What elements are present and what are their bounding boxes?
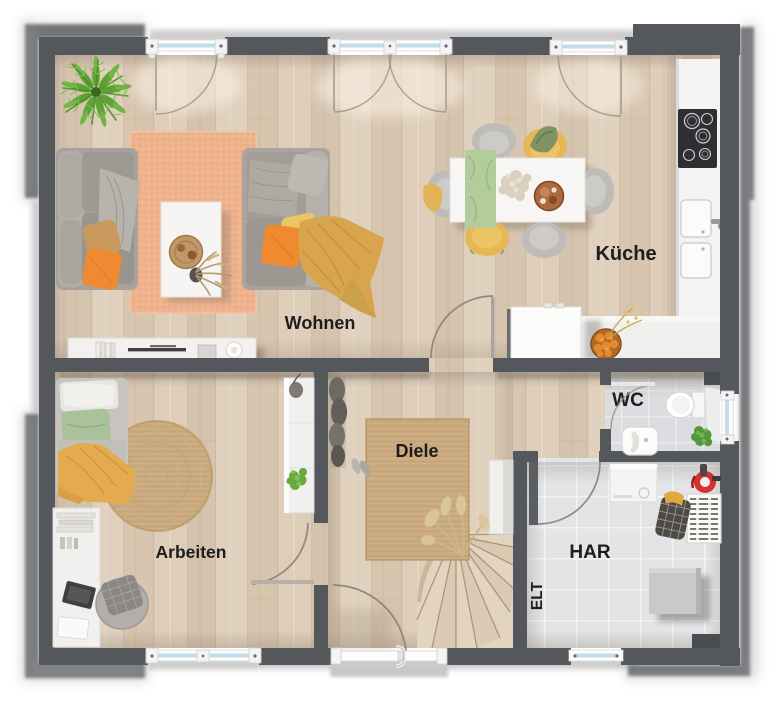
svg-text:Diele: Diele [395, 441, 438, 461]
svg-text:Küche: Küche [595, 243, 656, 265]
svg-text:Wohnen: Wohnen [285, 313, 356, 333]
svg-text:HAR: HAR [569, 542, 610, 563]
svg-text:ELT: ELT [529, 581, 546, 610]
svg-text:Arbeiten: Arbeiten [156, 542, 227, 562]
